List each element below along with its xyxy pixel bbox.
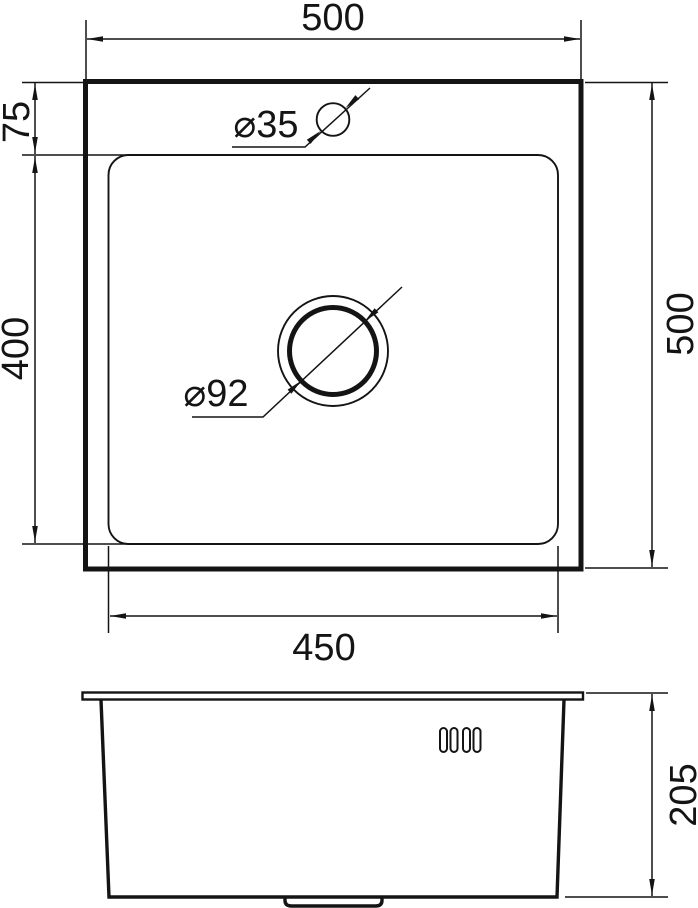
- bowl-width-label: 450: [292, 627, 355, 669]
- arrowhead: [541, 613, 557, 619]
- arrowhead: [32, 84, 38, 100]
- arrowhead: [649, 550, 655, 566]
- arrowhead: [32, 157, 38, 173]
- dimension-lines: [109, 546, 559, 633]
- bowl-depth-label: 400: [0, 317, 37, 380]
- side-view-rim: [83, 693, 584, 700]
- arrowhead: [649, 84, 655, 100]
- dimension-lines: [585, 83, 668, 569]
- side-view-body: [101, 700, 564, 897]
- overall-depth-label: 500: [660, 292, 698, 355]
- arrowhead: [365, 308, 379, 321]
- side-height-label: 205: [663, 763, 698, 826]
- arrowhead: [649, 695, 655, 711]
- arrowhead: [346, 95, 360, 108]
- arrowhead: [649, 879, 655, 895]
- arrowhead: [110, 613, 126, 619]
- dim-faucet-offset: 75: [0, 83, 130, 156]
- faucet-offset-label: 75: [0, 101, 38, 143]
- dimension-lines: [22, 156, 130, 544]
- overall-width-label: 500: [301, 0, 364, 39]
- dim-overall-width: 500: [86, 0, 581, 80]
- top-view: ⌀35 ⌀92 500 75: [0, 0, 698, 669]
- arrowhead: [87, 36, 103, 42]
- dim-side-height: 205: [565, 693, 698, 897]
- overflow-slot: [463, 728, 470, 752]
- top-view-bowl-edge: [109, 155, 559, 544]
- dim-bowl-width: 450: [109, 546, 559, 669]
- overflow-slots: [440, 728, 481, 752]
- dimension-lines: [22, 83, 130, 156]
- drawing-sheet: ⌀35 ⌀92 500 75: [0, 0, 698, 908]
- dim-overall-depth: 500: [585, 83, 698, 569]
- dim-bowl-depth: 400: [0, 156, 130, 544]
- overflow-slot: [451, 728, 458, 752]
- faucet-diameter-label: ⌀35: [233, 104, 298, 146]
- drain-stub: [285, 899, 382, 907]
- arrowhead: [32, 526, 38, 542]
- arrowhead: [307, 131, 321, 144]
- dimension-lines: [565, 693, 668, 897]
- faucet-hole: [317, 103, 350, 136]
- sink-technical-drawing: ⌀35 ⌀92 500 75: [0, 0, 698, 908]
- arrowhead: [288, 381, 302, 394]
- side-view: 205: [83, 693, 698, 907]
- overflow-slot: [474, 728, 481, 752]
- arrowhead: [564, 36, 580, 42]
- drain-diameter-label: ⌀92: [183, 373, 248, 415]
- overflow-slot: [440, 728, 447, 752]
